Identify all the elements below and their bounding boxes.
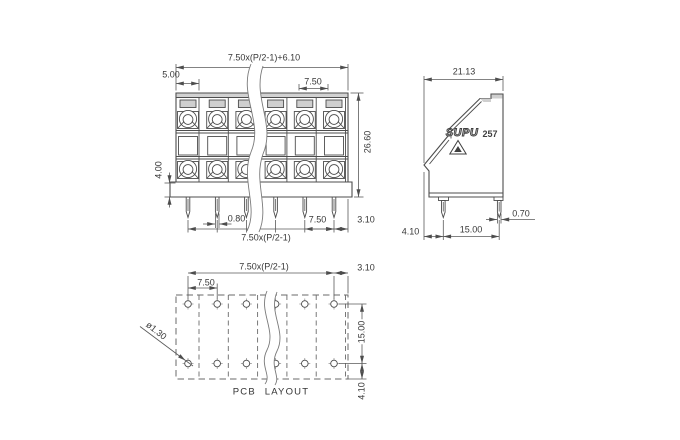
dim-side-overall-depth: 21.13 — [453, 68, 476, 77]
pcb-layout-caption: PCB LAYOUT — [233, 387, 309, 397]
dim-pcb-row-spacing: 15.00 — [358, 320, 367, 345]
model-number: 257 — [482, 129, 497, 139]
dim-side-pin-front-offset: 4.10 — [402, 227, 420, 236]
dim-pcb-hole-span: 7.50x(P/2-1) — [239, 263, 289, 272]
dim-front-pole-pitch-top: 7.50 — [304, 77, 322, 86]
dim-front-pin-edge-offset: 3.10 — [357, 215, 375, 224]
drawing-canvas — [0, 0, 680, 440]
datasheet-drawing: 7.50x(P/2-1)+6.10 5.00 7.50 26.60 4.00 0… — [0, 0, 680, 440]
dim-pcb-row-bottom-offset: 4.10 — [358, 382, 367, 400]
dim-front-pin-width: 0.80 — [228, 214, 246, 223]
dim-front-pin-pitch: 7.50 — [309, 215, 327, 224]
dim-front-overall-width: 7.50x(P/2-1)+6.10 — [228, 53, 300, 62]
brand-logo: SUPU — [446, 127, 479, 139]
dim-front-base-height: 4.00 — [155, 161, 164, 179]
dim-side-pin-width: 0.70 — [512, 210, 530, 219]
dim-front-overall-height: 26.60 — [364, 131, 373, 154]
dim-side-pin-row-spacing: 15.00 — [460, 225, 483, 234]
pcb-layout-drawing — [140, 273, 367, 385]
dim-front-lead-width: 5.00 — [162, 71, 180, 80]
front-view-drawing — [165, 64, 364, 233]
dim-pcb-edge-offset: 3.10 — [357, 263, 375, 272]
dim-pcb-hole-pitch: 7.50 — [197, 278, 215, 287]
dim-front-pin-span: 7.50x(P/2-1) — [241, 233, 291, 242]
